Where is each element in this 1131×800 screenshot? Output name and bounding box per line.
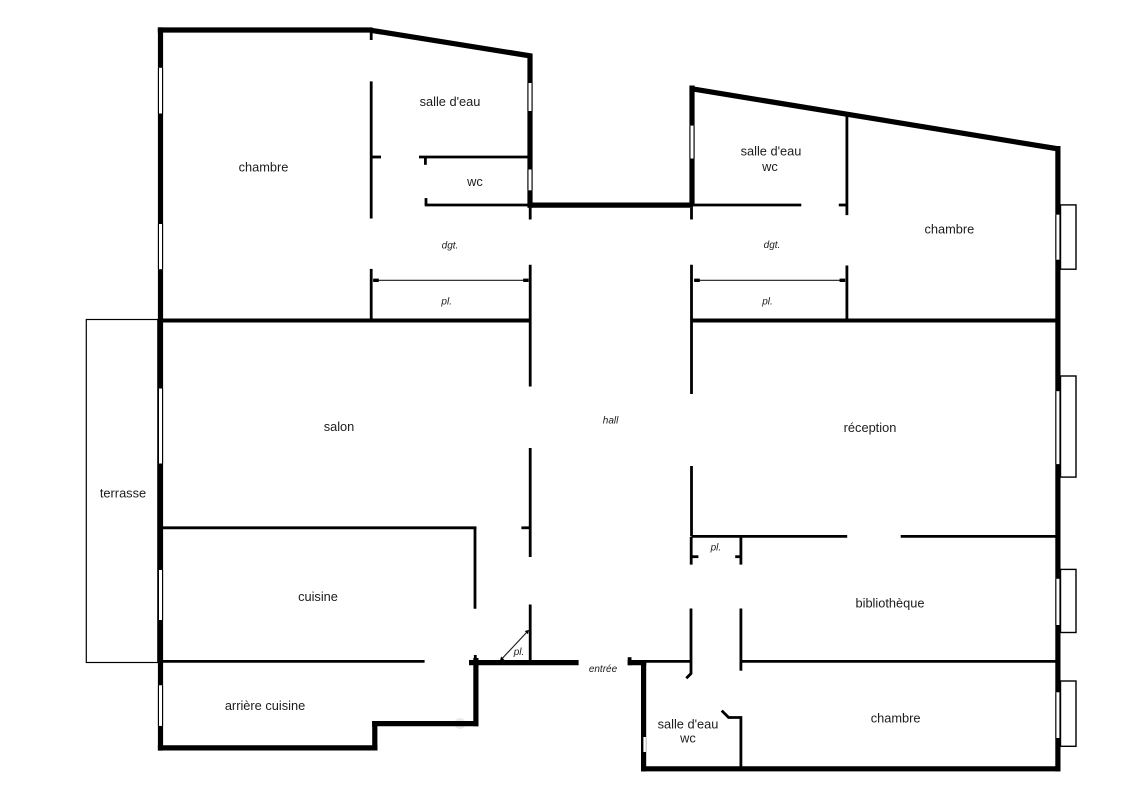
svg-text:salle d'eau: salle d'eau	[420, 94, 481, 109]
svg-text:hall: hall	[603, 416, 619, 427]
svg-text:chambre: chambre	[239, 160, 289, 175]
svg-text:dgt.: dgt.	[764, 240, 781, 251]
svg-text:entrée: entrée	[589, 664, 618, 675]
svg-text:salle d'eau: salle d'eau	[741, 143, 802, 158]
svg-text:wc: wc	[761, 159, 778, 174]
svg-text:terrasse: terrasse	[100, 485, 146, 500]
svg-text:salle d'eau: salle d'eau	[658, 716, 719, 731]
svg-text:chambre: chambre	[925, 222, 975, 237]
svg-text:dgt.: dgt.	[442, 240, 459, 251]
svg-text:chambre: chambre	[871, 711, 921, 726]
svg-text:réception: réception	[844, 420, 897, 435]
svg-text:arrière cuisine: arrière cuisine	[225, 698, 305, 713]
svg-text:pl.: pl.	[761, 296, 773, 307]
svg-text:pl.: pl.	[710, 542, 722, 553]
svg-text:wc: wc	[679, 731, 696, 746]
svg-text:salon: salon	[324, 419, 355, 434]
svg-text:cuisine: cuisine	[298, 589, 338, 604]
svg-text:bibliothèque: bibliothèque	[855, 595, 924, 610]
svg-text:wc: wc	[466, 174, 483, 189]
svg-text:pl.: pl.	[513, 647, 525, 658]
svg-text:pl.: pl.	[440, 296, 452, 307]
